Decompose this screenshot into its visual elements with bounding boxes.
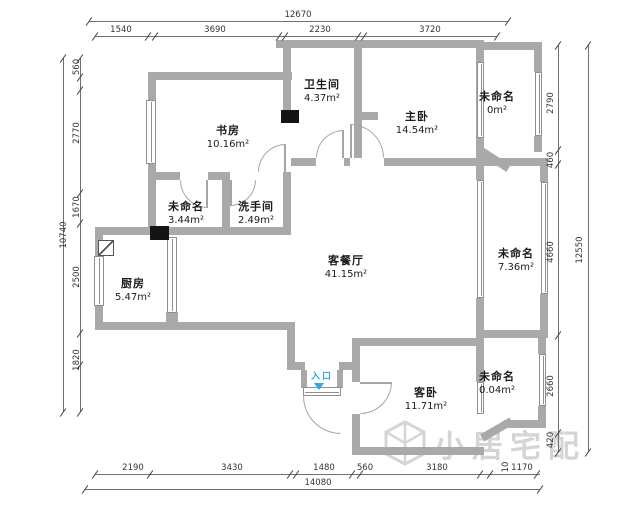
- room-label-unnamed-right-balcony: 未命名 7.36m²: [481, 245, 551, 273]
- room-label-bathroom: 卫生间 4.37m²: [282, 76, 362, 104]
- wall-segment: [352, 447, 484, 455]
- room-label-living-dining: 客餐厅 41.15m²: [296, 252, 396, 280]
- cube-logo-icon: [384, 420, 426, 466]
- sliding-door: [167, 237, 177, 313]
- wall-segment: [95, 322, 295, 330]
- window: [535, 72, 542, 136]
- room-name: 未命名: [466, 368, 528, 384]
- room-area: 14.54m²: [377, 125, 457, 136]
- wall-segment: [476, 42, 542, 50]
- door-leaf: [284, 144, 286, 172]
- window: [146, 100, 156, 164]
- dim-right-seg-2: 4660: [545, 232, 557, 272]
- dim-line: [558, 45, 559, 452]
- entrance-arrow-icon: [314, 383, 324, 390]
- dim-right-seg-3: 2660: [545, 366, 557, 406]
- wall-segment: [95, 227, 291, 235]
- dim-tick: [77, 408, 84, 417]
- room-area: 41.15m²: [296, 269, 396, 280]
- dim-top-seg-1: 3690: [195, 24, 235, 36]
- wall-segment: [354, 112, 378, 120]
- room-label-kitchen: 厨房 5.47m²: [98, 275, 168, 303]
- room-name: 洗手间: [221, 198, 291, 214]
- dim-tick: [60, 408, 67, 417]
- dim-left-seg-2: 1670: [71, 187, 83, 227]
- dim-bottom-seg-6: 1170: [502, 462, 542, 474]
- room-area: 0.04m²: [466, 385, 528, 396]
- room-label-unnamed-mid-left: 未命名 3.44m²: [146, 198, 226, 226]
- room-label-guest-bedroom: 客卧 11.71m²: [381, 384, 471, 412]
- room-area: 4.37m²: [282, 93, 362, 104]
- room-area: 5.47m²: [98, 292, 168, 303]
- dim-left-total: 10740: [58, 210, 70, 260]
- wall-segment: [276, 40, 484, 48]
- room-area: 2.49m²: [221, 215, 291, 226]
- wall-segment: [476, 166, 484, 180]
- wall-segment: [476, 298, 484, 338]
- dim-top-seg-0: 1540: [101, 24, 141, 36]
- wall-segment: [166, 312, 178, 324]
- wall-segment: [148, 72, 292, 80]
- room-area: 7.36m²: [481, 262, 551, 273]
- dim-tick: [505, 17, 512, 26]
- wall-segment: [291, 158, 316, 166]
- room-area: 10.16m²: [178, 139, 278, 150]
- dim-left-seg-3: 2500: [71, 257, 83, 297]
- dim-tick: [537, 485, 544, 494]
- room-area: 11.71m²: [381, 401, 471, 412]
- door-leaf: [350, 124, 352, 158]
- dim-line: [588, 45, 589, 452]
- room-name: 厨房: [98, 275, 168, 291]
- wall-segment: [352, 338, 484, 346]
- room-area: 0m²: [467, 105, 527, 116]
- dim-bottom-seg-1: 3430: [212, 462, 252, 474]
- dim-bottom-seg-4: 3180: [417, 462, 457, 474]
- dim-left-seg-0: 560: [71, 47, 83, 87]
- room-name: 客卧: [381, 384, 471, 400]
- entrance-label: 入口: [302, 369, 342, 382]
- door-arc: [316, 130, 344, 158]
- wall-segment: [344, 158, 350, 166]
- dim-bottom-seg-0: 2190: [113, 462, 153, 474]
- dim-bottom-total: 14080: [288, 477, 348, 489]
- dim-bottom-seg-3: 560: [345, 462, 385, 474]
- room-area: 3.44m²: [146, 215, 226, 226]
- shaft: [150, 226, 169, 240]
- room-name: 卫生间: [282, 76, 362, 92]
- flue-symbol: [98, 240, 114, 256]
- wall-segment: [538, 338, 546, 354]
- room-label-study: 书房 10.16m²: [178, 122, 278, 150]
- dim-top-seg-3: 3720: [410, 24, 450, 36]
- dim-top-total: 12670: [268, 9, 328, 21]
- wall-segment: [534, 42, 542, 72]
- room-name: 主卧: [377, 108, 457, 124]
- wall-segment: [148, 172, 180, 180]
- door-leaf: [342, 130, 344, 158]
- entry-door-arc: [303, 396, 341, 434]
- dim-tick: [494, 32, 501, 41]
- room-name: 书房: [178, 122, 278, 138]
- dim-right-seg-0: 2790: [545, 83, 557, 123]
- room-label-master-bedroom: 主卧 14.54m²: [377, 108, 457, 136]
- floor-plan-canvas: 小居宅配: [0, 0, 640, 521]
- room-label-washroom: 洗手间 2.49m²: [221, 198, 291, 226]
- wall-segment: [384, 158, 548, 166]
- wall-segment: [534, 136, 542, 152]
- room-label-unnamed-bottom-right: 未命名 0.04m²: [466, 368, 528, 396]
- room-name: 客餐厅: [296, 252, 396, 268]
- shaft: [281, 110, 299, 123]
- window: [477, 180, 484, 298]
- room-label-unnamed-top-right: 未命名 0m²: [467, 88, 527, 116]
- dim-right-seg-1: 460: [545, 140, 557, 180]
- dim-top-seg-2: 2230: [300, 24, 340, 36]
- wall-segment: [476, 330, 548, 338]
- room-name: 未命名: [481, 245, 551, 261]
- dim-right-seg-4: 420: [545, 420, 557, 460]
- dim-bottom-seg-2: 1480: [304, 462, 344, 474]
- dim-line: [95, 474, 540, 475]
- room-name: 未命名: [146, 198, 226, 214]
- dim-line: [85, 489, 540, 490]
- room-name: 未命名: [467, 88, 527, 104]
- dim-line: [89, 21, 508, 22]
- dim-right-total: 12550: [574, 225, 586, 275]
- dim-left-seg-4: 1820: [71, 340, 83, 380]
- dim-left-seg-1: 2770: [71, 113, 83, 153]
- wall-segment: [208, 172, 230, 180]
- wall-segment: [540, 294, 548, 338]
